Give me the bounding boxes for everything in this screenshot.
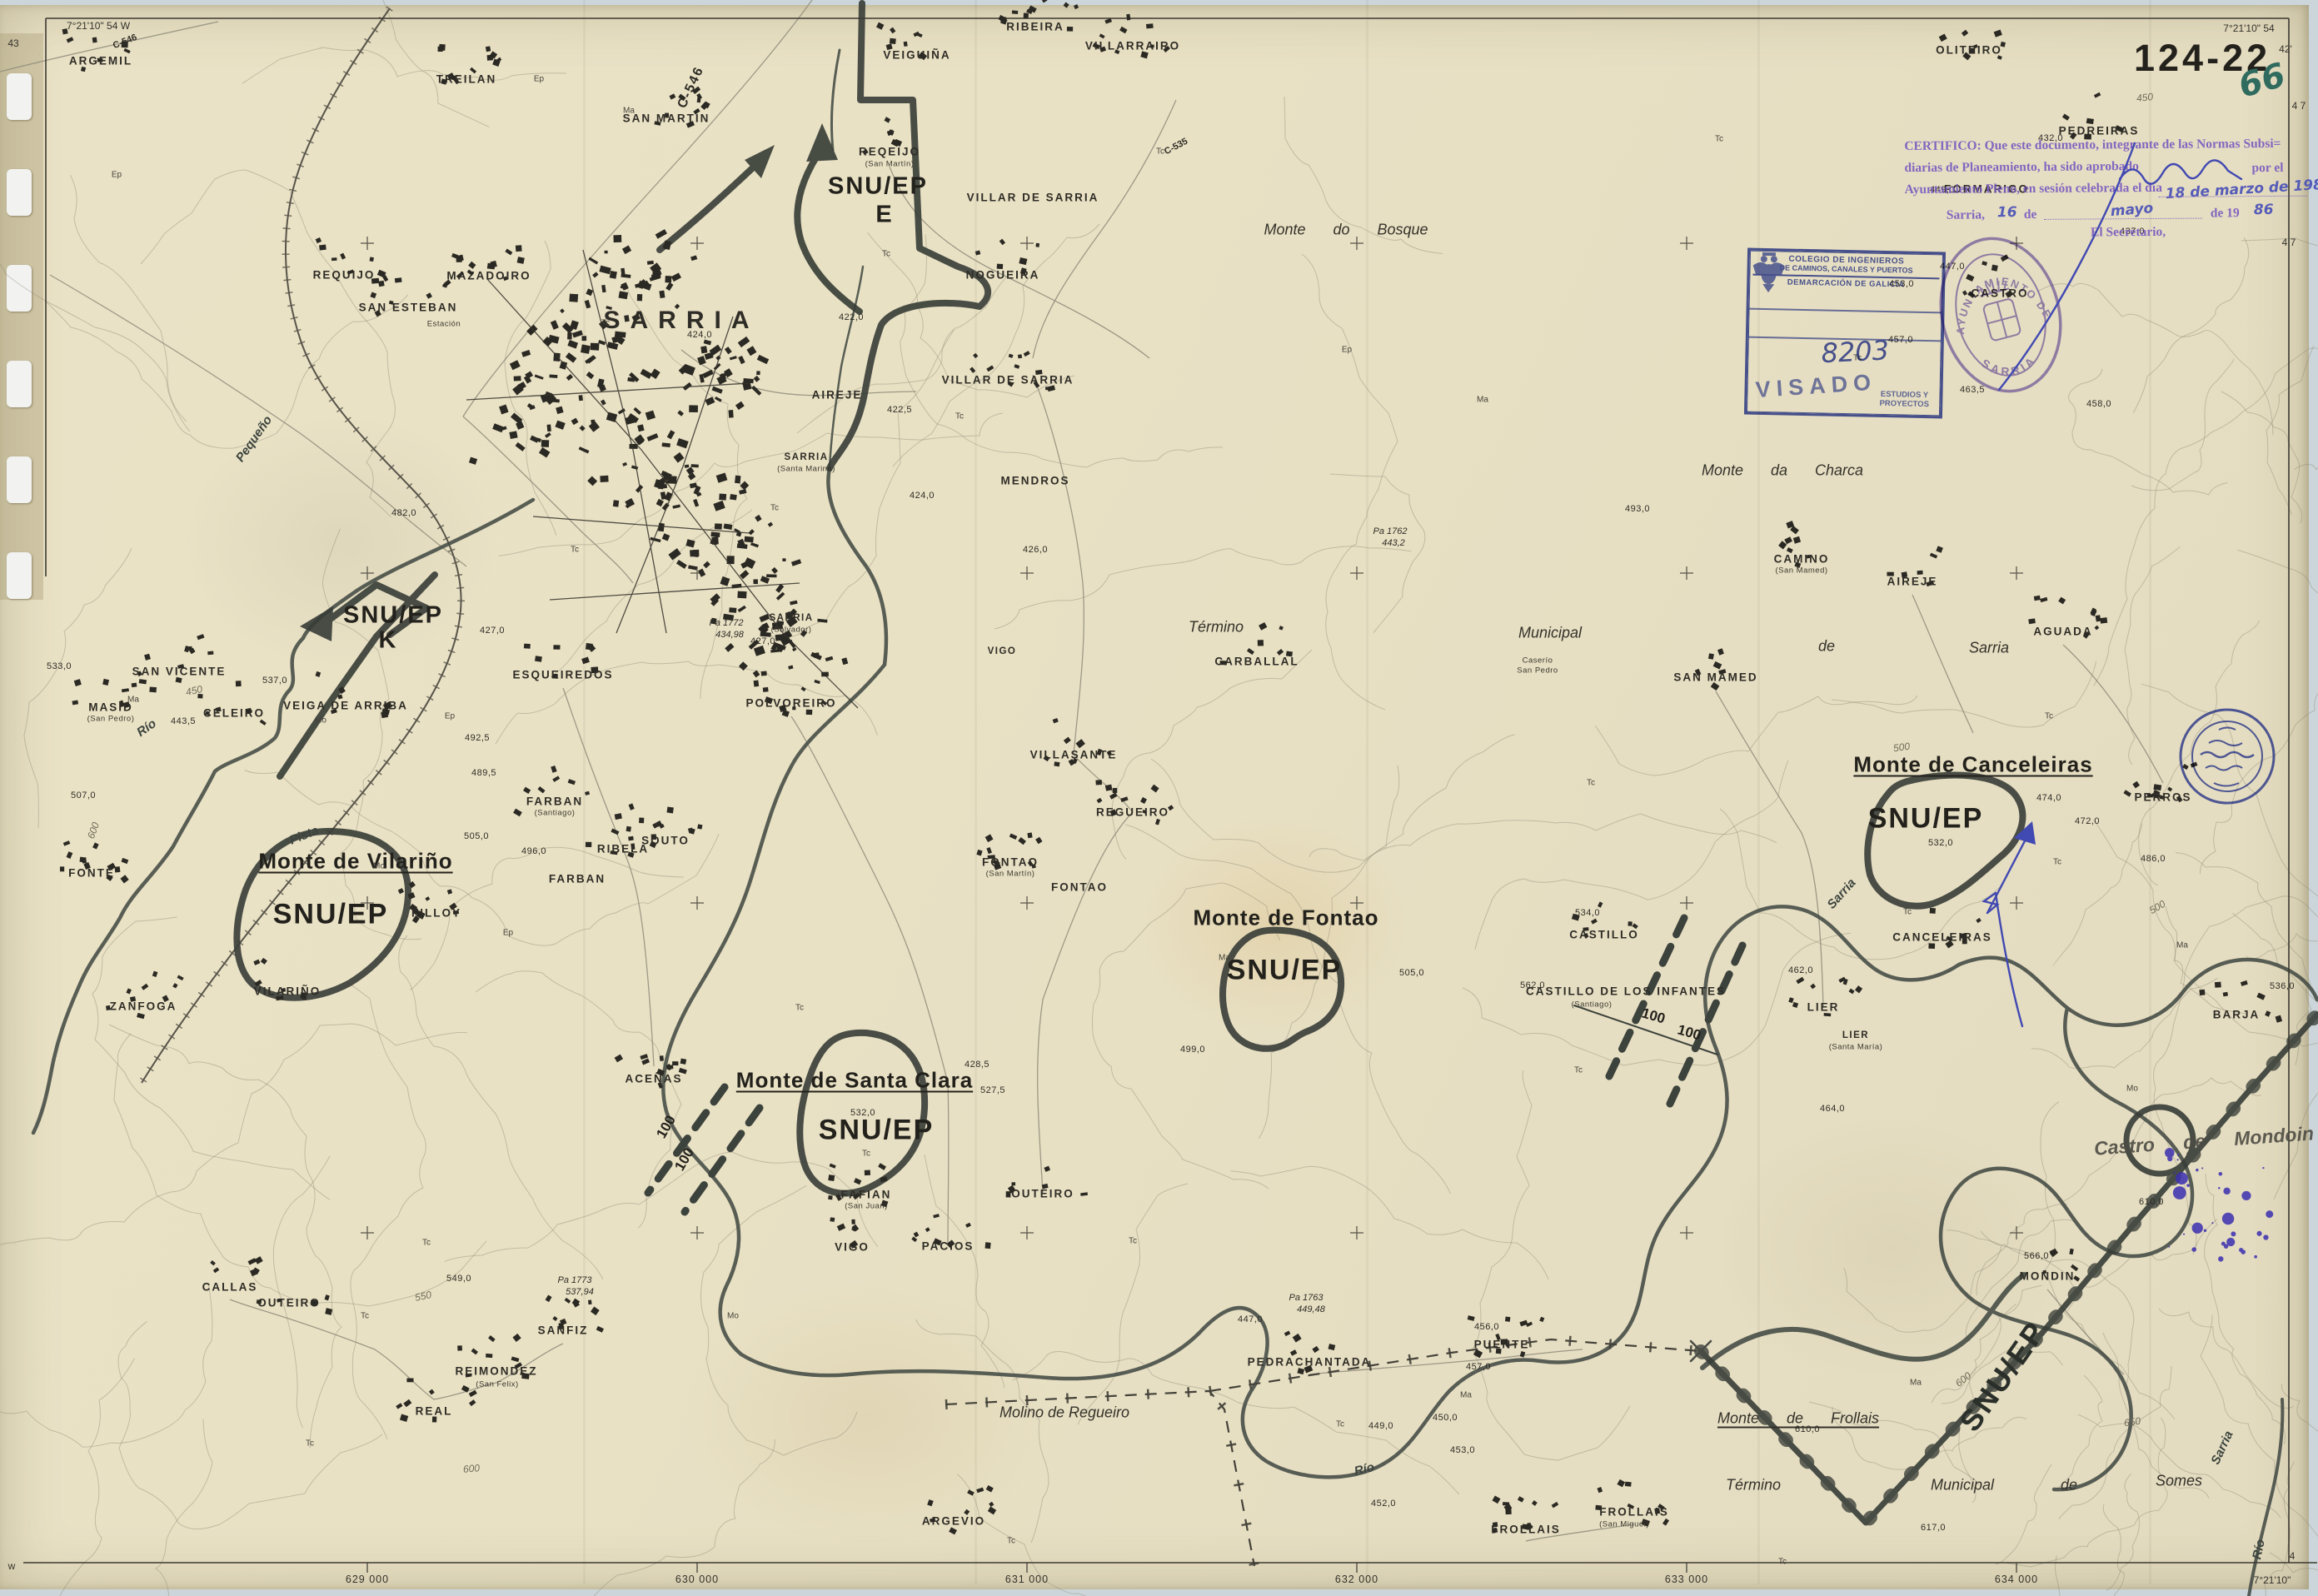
- landuse-code: Ma: [1477, 396, 1488, 405]
- contour-label: 500: [2147, 898, 2167, 916]
- place-label: OLITEIRO: [1936, 44, 2002, 57]
- area-label: de: [2061, 1477, 2077, 1494]
- snuep-label: SNU/EP: [819, 1115, 935, 1147]
- spot-height: 426,0: [1023, 545, 1048, 555]
- place-subtitle: (Santa María): [1829, 1043, 1883, 1052]
- geodetic-point: 434,98: [715, 630, 744, 640]
- landuse-code: Tc: [1336, 1420, 1344, 1429]
- margin-label: 4: [2290, 1550, 2296, 1562]
- area-label: Término: [1189, 619, 1244, 636]
- spot-height: 474,0: [2036, 793, 2061, 803]
- landuse-code: Tc: [862, 1150, 870, 1159]
- place-subtitle: (San Pedro): [87, 715, 135, 724]
- place-subtitle: (Santiago): [535, 809, 576, 818]
- grid-coordinate-label: 629 000: [346, 1574, 389, 1585]
- stamp-department: ESTUDIOS Y PROYECTOS: [1872, 390, 1937, 410]
- stamp-ayto-bottom-text: SARRIA: [1977, 343, 2041, 386]
- monte-label: Monte de Santa Clara: [736, 1068, 973, 1094]
- spot-height: 427,0: [750, 636, 775, 646]
- cert-line1: CERTIFICO: Que este documento, integrant…: [1904, 137, 2281, 154]
- hand-annotation: 100: [1640, 1005, 1667, 1027]
- spot-height: 458,0: [2086, 399, 2111, 409]
- place-label: SAN VICENTE: [132, 666, 227, 678]
- landuse-code: Tc: [1574, 1066, 1583, 1075]
- area-label: Sarria: [1969, 640, 2009, 657]
- spot-height: 453,0: [1450, 1445, 1475, 1455]
- margin-label: 7°21'10" 54: [2223, 22, 2274, 34]
- place-label: PEDREIRAS: [2059, 125, 2140, 137]
- area-label: Municipal: [1518, 625, 1582, 642]
- place-label: FARBAN: [549, 873, 606, 885]
- contour-label: 550: [414, 1289, 433, 1304]
- cert-year-prefix: de 19: [2211, 206, 2240, 221]
- spot-height: 424,0: [910, 491, 935, 501]
- place-label: OUTEIRO: [1011, 1188, 1074, 1200]
- place-label: VILLAR DE SARRIA: [942, 374, 1074, 387]
- area-label: Monte do Bosque: [1264, 222, 1428, 239]
- visado-mark: VISADO: [1755, 370, 1877, 404]
- place-label: PUENTE: [1474, 1339, 1530, 1351]
- eagle-emblem-icon: [1749, 251, 1788, 295]
- landuse-code: Ma: [1460, 1391, 1472, 1400]
- spot-height: 422,0: [839, 312, 864, 322]
- spot-height: 566,0: [2024, 1251, 2049, 1261]
- landuse-code: Tc: [2053, 858, 2061, 867]
- area-label: Somes: [2156, 1473, 2202, 1490]
- place-subtitle: (San Martín): [865, 160, 915, 169]
- place-label: FROLLAIS: [1599, 1506, 1669, 1519]
- place-label: OUTEIRO: [257, 1297, 321, 1309]
- place-label: VIGO: [988, 646, 1017, 656]
- stamp-registry-number: 8203: [1821, 334, 1890, 369]
- place-label: REAL: [416, 1405, 453, 1418]
- landuse-code: Ep: [503, 929, 513, 938]
- snuep-label: SNU/EP: [273, 899, 389, 931]
- landuse-code: Tc: [571, 546, 579, 555]
- spot-height: 527,5: [980, 1085, 1005, 1095]
- area-label: de: [1818, 638, 1835, 656]
- place-label: VEIGA DE ARRIBA: [283, 700, 408, 712]
- place-label: ARGEVIO: [922, 1515, 985, 1528]
- spot-height: 457,0: [1466, 1362, 1491, 1372]
- landuse-code: Tc: [955, 412, 964, 421]
- place-label: CALLAS: [202, 1281, 258, 1294]
- place-label: ZANFOGA: [110, 1000, 177, 1013]
- cert-city: Sarria,: [1947, 207, 1985, 222]
- contour-label: 450: [185, 683, 204, 698]
- place-label: REIMONDEZ: [456, 1365, 538, 1378]
- road-label: C-546: [112, 32, 138, 51]
- ayuntamiento-oval-stamp: AYUNTAMIENTO DE SARRIA: [1934, 232, 2067, 398]
- margin-label: 4 7: [2292, 100, 2306, 112]
- landuse-code: Tc: [1156, 147, 1164, 157]
- spot-height: 507,0: [71, 791, 96, 800]
- place-label: FONTAO: [982, 856, 1039, 869]
- place-subtitle: (San Juan): [845, 1202, 887, 1211]
- contour-label: 650: [2123, 1415, 2141, 1429]
- place-label: FARBAN: [526, 796, 583, 808]
- landuse-code: Ep: [112, 171, 122, 180]
- spot-height: 482,0: [391, 508, 416, 518]
- landuse-code: Ma: [623, 107, 635, 116]
- spot-height: 456,0: [1474, 1322, 1499, 1332]
- grid-coordinate-label: 633 000: [1665, 1574, 1708, 1585]
- landuse-code: Tc: [1587, 779, 1595, 788]
- place-label: AIREJE: [1887, 576, 1938, 588]
- place-label: LIER: [1807, 1001, 1840, 1014]
- spot-height: 472,0: [2075, 816, 2100, 826]
- engineers-college-stamp: COLEGIO DE INGENIEROS DE CAMINOS, CANALE…: [1744, 248, 1946, 419]
- place-label: REGUEIRO: [1096, 806, 1169, 819]
- snuep-label: E: [875, 202, 893, 229]
- place-label: CAMINO: [1774, 553, 1830, 566]
- spot-height: 533,0: [47, 661, 72, 671]
- cert-line2: diarias de Planeamiento, ha sido aprobad…: [1904, 159, 2138, 176]
- grid-coordinate-label: 631 000: [1005, 1574, 1049, 1585]
- spot-height: 486,0: [2141, 854, 2166, 864]
- landuse-code: Ep: [534, 75, 544, 84]
- snuep-label: SNU/EP: [1227, 955, 1343, 987]
- place-label: MONDIN: [2020, 1270, 2076, 1283]
- place-subtitle: Caserío: [1523, 656, 1553, 666]
- margin-label: w: [8, 1560, 16, 1572]
- river-label: Pequeño: [233, 413, 275, 465]
- place-label: VILLASANTE: [1030, 749, 1118, 761]
- monte-label: Monte de Vilariño: [258, 849, 452, 875]
- place-label: AIREJE: [812, 389, 863, 401]
- cert-year-handwritten: 86: [2254, 202, 2274, 218]
- place-label: SAN MARTIN: [623, 112, 710, 125]
- place-label: CASTILLO DE LOS INFANTES: [1526, 985, 1726, 998]
- landuse-code: Ma: [2176, 941, 2188, 950]
- place-label: AGUADA: [2033, 626, 2092, 638]
- landuse-code: Tc: [1715, 135, 1723, 144]
- place-label: CASTILLO: [1569, 929, 1639, 941]
- place-label: SAN MAMED: [1673, 671, 1757, 684]
- place-subtitle: (San Mamed): [1775, 566, 1827, 576]
- place-label: ARGEMIL: [69, 55, 132, 67]
- landuse-code: Tc: [1778, 1558, 1787, 1567]
- river-label: Sarria: [1824, 876, 1858, 912]
- spot-height: 462,0: [1788, 965, 1813, 975]
- place-label: RIBEIRA: [1006, 21, 1064, 33]
- spot-height: 443,5: [171, 716, 196, 726]
- place-label: CANCELEIRAS: [1892, 931, 1992, 944]
- place-label: TREILAN: [436, 73, 497, 86]
- landuse-code: Mo: [2126, 1085, 2138, 1094]
- river-label: Pista: [287, 823, 321, 847]
- snuep-label: SNU/EP: [828, 173, 928, 201]
- spot-height: 422,5: [887, 405, 912, 415]
- road-label: C-546: [675, 64, 708, 111]
- place-label: VIGO: [835, 1241, 870, 1254]
- place-label: PACIOS: [922, 1240, 975, 1253]
- place-subtitle: (Santiago): [1572, 1000, 1613, 1010]
- spot-height: 532,0: [1928, 838, 1953, 848]
- place-label: VILLARRAIRO: [1085, 40, 1180, 52]
- place-label: CARBALLAL: [1214, 656, 1299, 668]
- spot-height: 449,0: [1368, 1421, 1393, 1431]
- margin-label: 4.7: [2282, 237, 2296, 248]
- place-label: CELEIRO: [203, 707, 265, 720]
- grid-coordinate-label: 632 000: [1335, 1574, 1378, 1585]
- area-label: Término: [1726, 1477, 1781, 1494]
- place-label: FONTAO: [1051, 881, 1108, 894]
- place-label: MENDROS: [1000, 475, 1069, 487]
- spot-height: 492,5: [465, 733, 490, 743]
- place-label: ESQUEIREDOS: [512, 669, 613, 681]
- place-subtitle: (Salvador): [771, 626, 812, 635]
- geodetic-point: 443,2: [1382, 538, 1405, 548]
- river-label: Río: [2250, 1538, 2268, 1560]
- svg-text:SARRIA: SARRIA: [1977, 343, 2041, 386]
- hand-annotation: 100: [653, 1113, 680, 1142]
- spot-height: 427,0: [480, 626, 505, 636]
- spot-height: 537,0: [262, 676, 287, 686]
- landuse-code: Tc: [422, 1239, 431, 1248]
- place-label: SARRIA: [603, 307, 759, 335]
- landuse-code: Tc: [361, 1312, 369, 1321]
- place-label: FAFIAN: [841, 1189, 892, 1201]
- place-label: SANFIZ: [538, 1324, 589, 1337]
- spot-height: 496,0: [521, 846, 546, 856]
- landuse-code: Ma: [127, 696, 139, 705]
- place-label: VEIGUIÑA: [883, 49, 950, 62]
- cert-underline: [2044, 205, 2202, 220]
- spot-height: 617,0: [1921, 1523, 1946, 1533]
- landuse-code: Mo: [373, 862, 385, 871]
- margin-label: 7°21'10": [2254, 1574, 2291, 1586]
- road-label: C-535: [1163, 137, 1189, 157]
- cert-underline: [2159, 182, 2307, 197]
- hand-annotation: 100: [1676, 1021, 1703, 1044]
- landuse-code: Tc: [882, 250, 890, 259]
- place-label: VILARIÑO: [254, 985, 322, 998]
- spot-height: 489,5: [471, 768, 496, 778]
- spot-height: 505,0: [464, 831, 489, 841]
- spot-height: 549,0: [446, 1274, 471, 1284]
- place-label: FILLOY: [411, 907, 461, 920]
- place-subtitle: San Pedro: [1517, 666, 1558, 676]
- landuse-code: Ep: [1342, 346, 1352, 355]
- place-label: VILLAR DE SARRIA: [967, 192, 1099, 204]
- geodetic-point: Pa 1763: [1289, 1293, 1324, 1303]
- place-label: SARRIA: [769, 613, 813, 623]
- geodetic-point: 537,94: [566, 1287, 594, 1297]
- landuse-code: Ma: [1219, 954, 1230, 963]
- area-label: Monte da Charca: [1702, 462, 1863, 480]
- spot-height: 610,0: [1795, 1424, 1820, 1434]
- place-label: SAN ESTEBAN: [359, 302, 458, 314]
- margin-label: 43: [7, 37, 18, 49]
- cert-line3: Ayuntamiento Pleno, en sesión celebrada …: [1905, 181, 2162, 197]
- geodetic-point: Pa 1762: [1373, 526, 1408, 536]
- monte-label: Monte de Canceleiras: [1853, 752, 2092, 778]
- landuse-code: Tc: [306, 1439, 314, 1449]
- spot-height: 452,0: [1371, 1499, 1396, 1509]
- area-label: Molino de Regueiro: [999, 1404, 1129, 1422]
- place-label: SARRIA: [784, 452, 828, 462]
- river-label: Sarria: [2208, 1429, 2236, 1467]
- contour-label: 500: [1892, 741, 1911, 755]
- place-label: MASID: [88, 701, 133, 714]
- stamp-ayto-top-text: AYUNTAMIENTO DE: [1942, 263, 2056, 345]
- place-subtitle: (San Felix): [476, 1380, 518, 1389]
- landuse-code: Tc: [601, 319, 610, 328]
- spot-height: 447,0: [1238, 1314, 1263, 1324]
- margin-label: 7°21'10" 54 W: [67, 20, 130, 32]
- landuse-code: Tc: [795, 1004, 804, 1013]
- place-label: MAZADOIRO: [446, 270, 531, 282]
- landuse-code: Tc: [2045, 712, 2053, 721]
- grid-coordinate-label: 630 000: [675, 1574, 719, 1585]
- landuse-code: Mo: [727, 1312, 739, 1321]
- place-label: BARJA: [2213, 1009, 2261, 1021]
- spot-height: 532,0: [850, 1108, 875, 1118]
- snuep-label: K: [379, 627, 398, 655]
- spot-height: 499,0: [1180, 1045, 1205, 1055]
- place-label: POLVOREIRO: [745, 697, 836, 710]
- place-label: PEDRACHANTADA: [1248, 1356, 1372, 1369]
- contour-label: 600: [1953, 1369, 1973, 1389]
- place-label: FROLLAIS: [1491, 1524, 1561, 1536]
- geodetic-point: 449,48: [1297, 1304, 1325, 1314]
- place-label: ACEÑAS: [625, 1073, 682, 1085]
- contour-label: 600: [462, 1462, 480, 1475]
- spot-height: 450,0: [1433, 1413, 1458, 1423]
- snuep-label: SNU/EP: [343, 602, 443, 630]
- hand-annotation: 100: [671, 1145, 698, 1175]
- place-label: NOGUEIRA: [966, 269, 1040, 282]
- geodetic-point: Pa 1772: [710, 618, 744, 628]
- grid-coordinate-label: 634 000: [1995, 1574, 2038, 1585]
- margin-label: 42': [2279, 43, 2292, 55]
- place-label: LIER: [1842, 1030, 1869, 1040]
- river-label: Río: [1353, 1460, 1376, 1479]
- spot-height: 428,5: [965, 1060, 990, 1070]
- geodetic-point: Pa 1773: [558, 1275, 592, 1285]
- spot-height: 464,0: [1820, 1104, 1845, 1114]
- monte-label: Monte de Fontao: [1194, 905, 1379, 931]
- landuse-code: Tc: [1007, 1537, 1015, 1546]
- spot-height: 493,0: [1625, 504, 1650, 514]
- landuse-code: Ep: [445, 712, 455, 721]
- cert-line2-end: por el: [2251, 161, 2283, 176]
- landuse-code: Tc: [770, 504, 779, 513]
- spot-height: 424,0: [687, 330, 712, 340]
- place-label: RIBELA: [597, 843, 649, 855]
- spot-height: 534,0: [1575, 908, 1600, 918]
- contour-label: 450: [2136, 91, 2153, 104]
- place-label: FONTE: [68, 867, 115, 880]
- place-subtitle: (Santa Marina): [777, 465, 835, 474]
- spot-height: 610,0: [2139, 1197, 2164, 1207]
- area-label: Municipal: [1931, 1477, 1994, 1494]
- landuse-code: Tc: [1129, 1237, 1137, 1246]
- cert-day-handwritten: 16: [1997, 204, 2017, 221]
- cert-de: de: [2024, 207, 2037, 222]
- place-subtitle: Estación: [427, 320, 461, 329]
- landuse-code: Mo: [315, 716, 327, 726]
- spot-height: 536,0: [2270, 981, 2295, 991]
- svg-text:AYUNTAMIENTO DE: AYUNTAMIENTO DE: [1942, 263, 2056, 345]
- landuse-code: Tc: [1903, 908, 1912, 917]
- contour-label: 600: [85, 820, 102, 840]
- round-blue-stamp: [2176, 705, 2279, 808]
- castro-label: Castro de Mondoin: [2093, 1122, 2315, 1160]
- cert-secretary: El Secretario,: [2091, 225, 2166, 241]
- landuse-code: Ma: [1910, 1379, 1922, 1388]
- river-label: Río: [134, 716, 159, 740]
- spot-height: 505,0: [1399, 968, 1424, 978]
- snuep-label: SNU/EP: [1868, 803, 1984, 835]
- place-subtitle: (San Martín): [986, 870, 1035, 879]
- place-label: REQEIJO: [859, 146, 920, 158]
- place-subtitle: (San Miguel): [1599, 1520, 1649, 1529]
- place-label: REQUIJO: [313, 269, 376, 282]
